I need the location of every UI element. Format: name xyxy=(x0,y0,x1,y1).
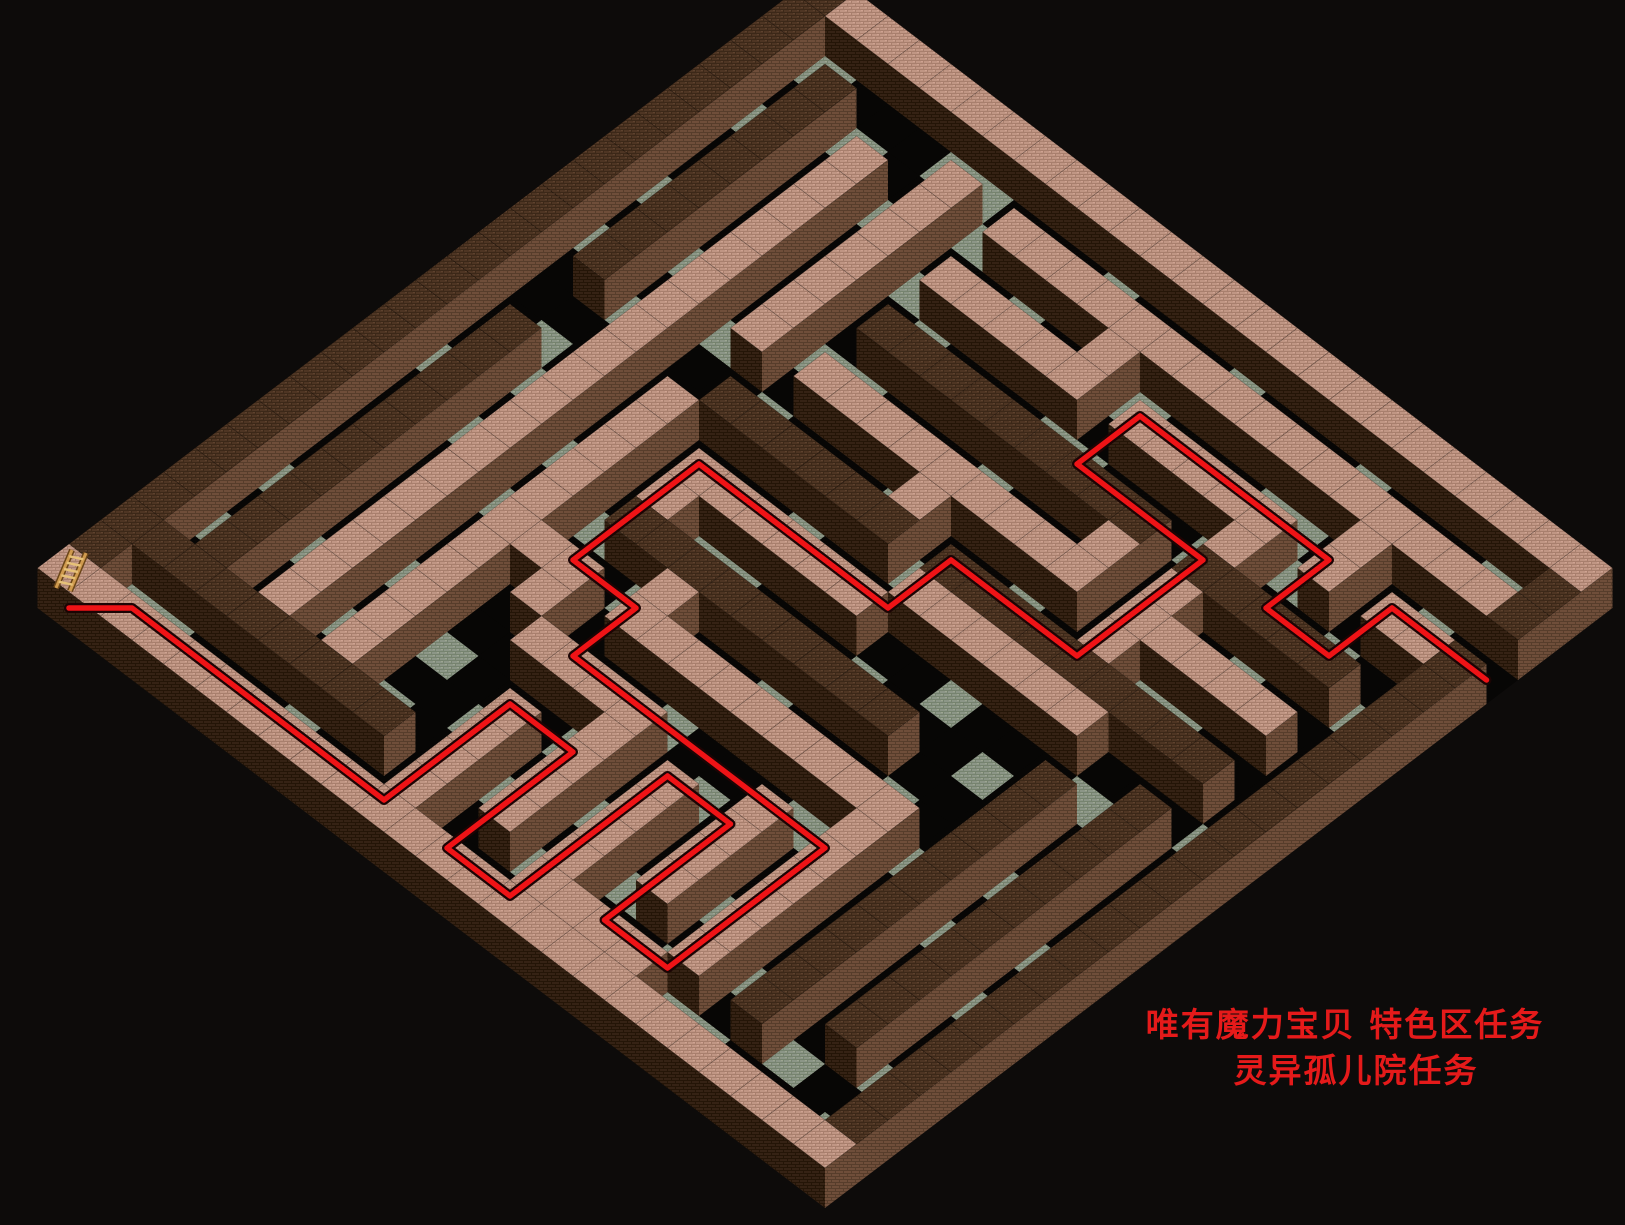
caption-line-2: 灵异孤儿院任务 xyxy=(1234,1044,1479,1092)
caption-line-1: 唯有魔力宝贝 特色区任务 xyxy=(1146,998,1545,1046)
maze-screenshot: 唯有魔力宝贝 特色区任务 灵异孤儿院任务 xyxy=(0,0,1625,1225)
